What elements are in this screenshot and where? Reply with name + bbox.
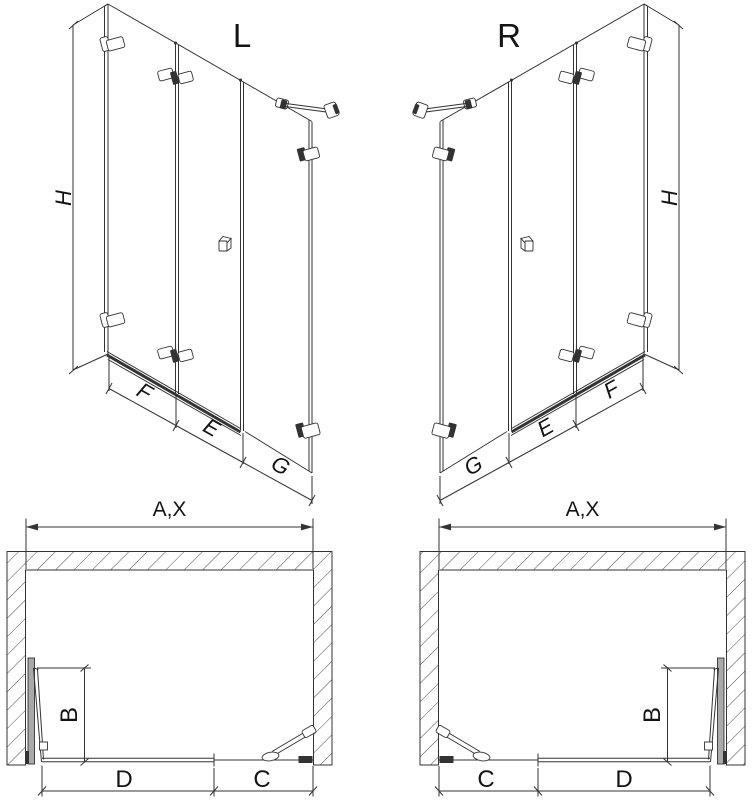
wall-profile-hinge-bottom: [100, 308, 126, 328]
diagram-page: L R H F E G H G E F A,X B D C A,X B C D: [0, 0, 752, 800]
label-f-right: F: [599, 375, 624, 404]
door-knob: [219, 237, 231, 252]
open-door-plan: [34, 668, 48, 762]
side-panel-clamp-top: [297, 144, 320, 163]
label-height-right: H: [657, 190, 682, 206]
label-d-left-plan: D: [115, 766, 132, 793]
heading-right-variant: R: [497, 17, 521, 54]
label-overall-width-right-plan: A,X: [566, 498, 600, 521]
segment-dimension-chain: [38, 766, 317, 797]
support-bar-plan: [261, 725, 316, 763]
label-b-left-plan: B: [56, 707, 83, 723]
technical-diagram: L R H F E G H G E F A,X B D C A,X B C D: [0, 0, 752, 800]
label-g-left: G: [267, 450, 294, 480]
label-height-left: H: [51, 190, 76, 206]
wall-profile-hinge-top: [100, 32, 126, 52]
label-f-left: F: [133, 377, 158, 406]
label-c-left-plan: C: [253, 766, 270, 793]
plan-right-walls: [420, 552, 745, 766]
side-panel-clamp-bottom: [295, 419, 320, 440]
label-b-right-plan: B: [639, 707, 666, 723]
label-e-left: E: [199, 413, 224, 442]
label-d-right-plan: D: [615, 766, 632, 793]
support-bar: [275, 98, 340, 119]
label-g-right: G: [460, 450, 487, 480]
wall-profile-plan: [25, 658, 35, 764]
heading-left-variant: L: [233, 17, 251, 54]
label-c-right-plan: C: [477, 766, 494, 793]
label-overall-width-left-plan: A,X: [153, 498, 187, 521]
plan-left-walls: [7, 552, 332, 766]
